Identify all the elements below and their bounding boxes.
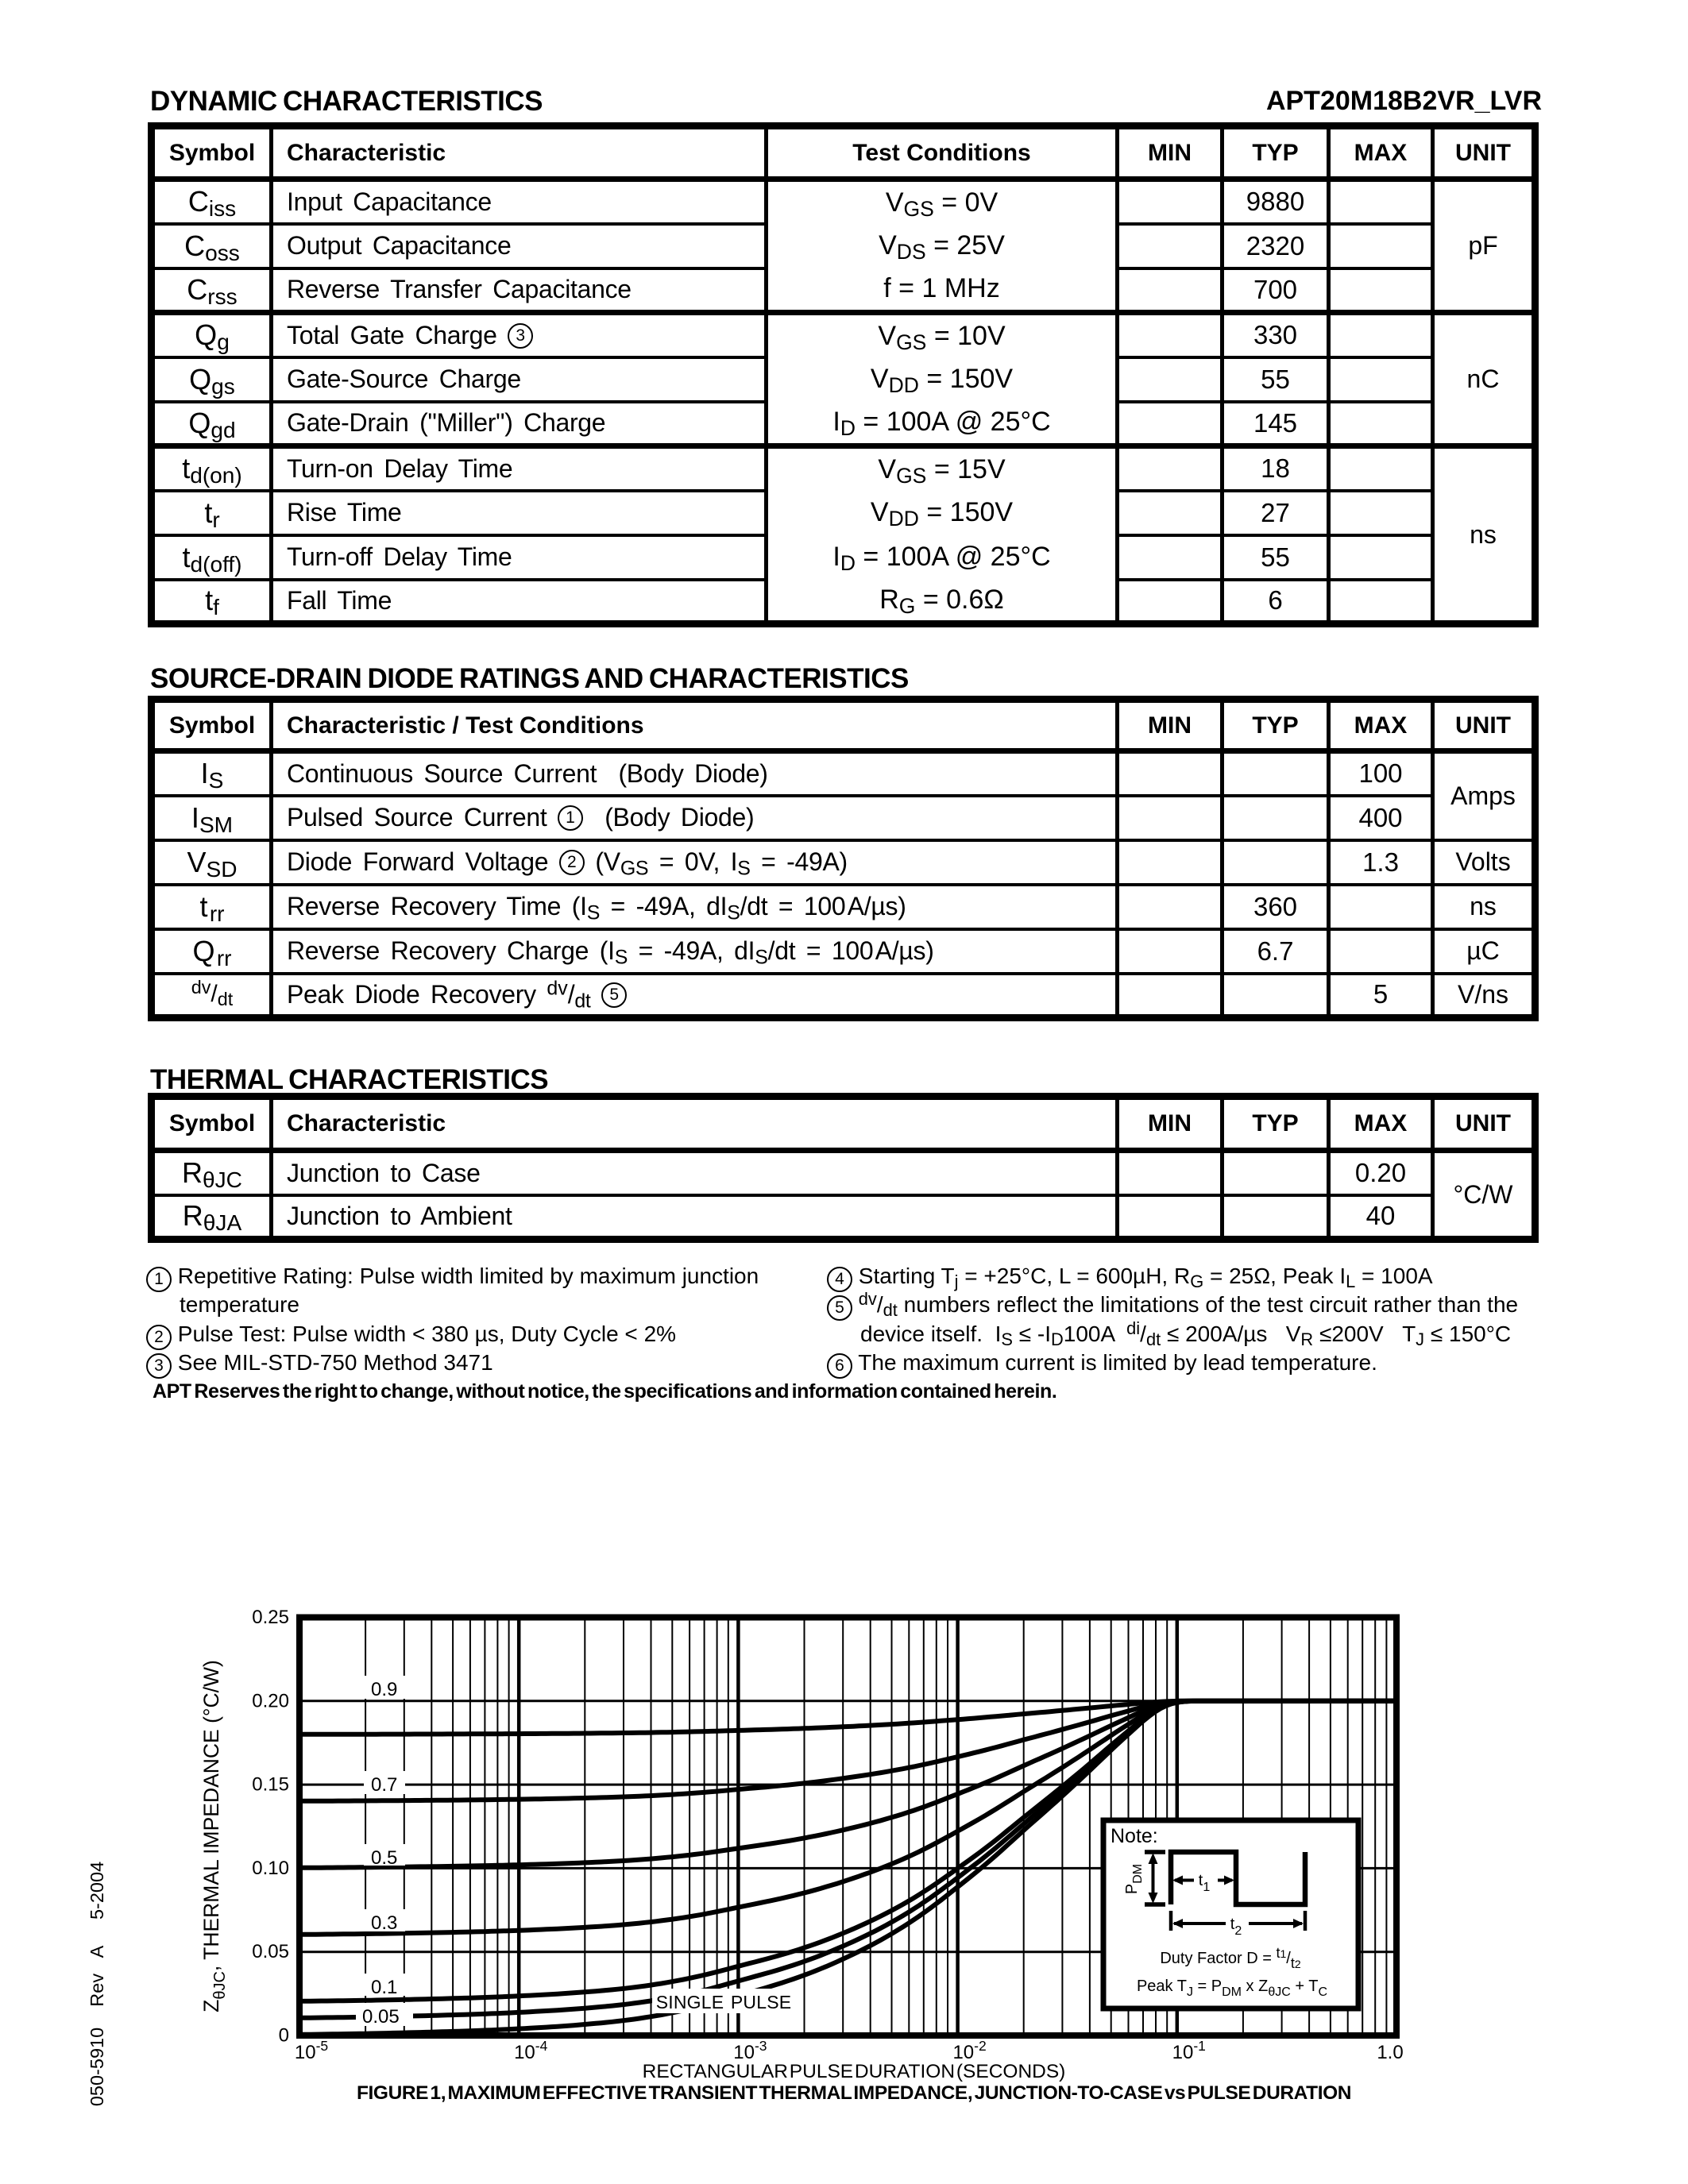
svg-text:0.7: 0.7 bbox=[371, 1774, 397, 1796]
svg-text:0.15: 0.15 bbox=[252, 1774, 289, 1796]
svg-text:FIGURE 1, MAXIMUM EFFECTIVE TR: FIGURE 1, MAXIMUM EFFECTIVE TRANSIENT TH… bbox=[357, 2082, 1351, 2104]
svg-text:10-5: 10-5 bbox=[295, 2038, 328, 2063]
svg-text:10-2: 10-2 bbox=[952, 2038, 986, 2063]
svg-text:0.3: 0.3 bbox=[371, 1912, 397, 1934]
svg-text:0.05: 0.05 bbox=[252, 1941, 289, 1962]
svg-text:10-4: 10-4 bbox=[514, 2038, 548, 2063]
svg-text:RECTANGULAR PULSE DURATION (SE: RECTANGULAR PULSE DURATION (SECONDS) bbox=[643, 2061, 1066, 2082]
svg-text:Note:: Note: bbox=[1111, 1825, 1158, 1847]
svg-text:10-3: 10-3 bbox=[733, 2038, 767, 2063]
svg-text:0.20: 0.20 bbox=[252, 1690, 289, 1711]
svg-text:10-1: 10-1 bbox=[1172, 2038, 1206, 2063]
svg-text:0.05: 0.05 bbox=[362, 2006, 400, 2028]
svg-text:ZθJC, THERMAL IMPEDANCE (°C/W): ZθJC, THERMAL IMPEDANCE (°C/W) bbox=[199, 1660, 229, 2012]
svg-text:0: 0 bbox=[279, 2025, 289, 2047]
svg-text:0.9: 0.9 bbox=[371, 1679, 397, 1700]
svg-text:SINGLE PULSE: SINGLE PULSE bbox=[656, 1992, 792, 2012]
svg-text:1.0: 1.0 bbox=[1377, 2042, 1403, 2063]
svg-text:0.10: 0.10 bbox=[252, 1858, 289, 1879]
svg-text:0.5: 0.5 bbox=[371, 1847, 397, 1869]
svg-text:0.1: 0.1 bbox=[371, 1977, 397, 1998]
svg-text:050-5910 Rev A 5-2004: 050-5910 Rev A 5-2004 bbox=[87, 1862, 107, 2106]
svg-text:0.25: 0.25 bbox=[252, 1607, 289, 1628]
